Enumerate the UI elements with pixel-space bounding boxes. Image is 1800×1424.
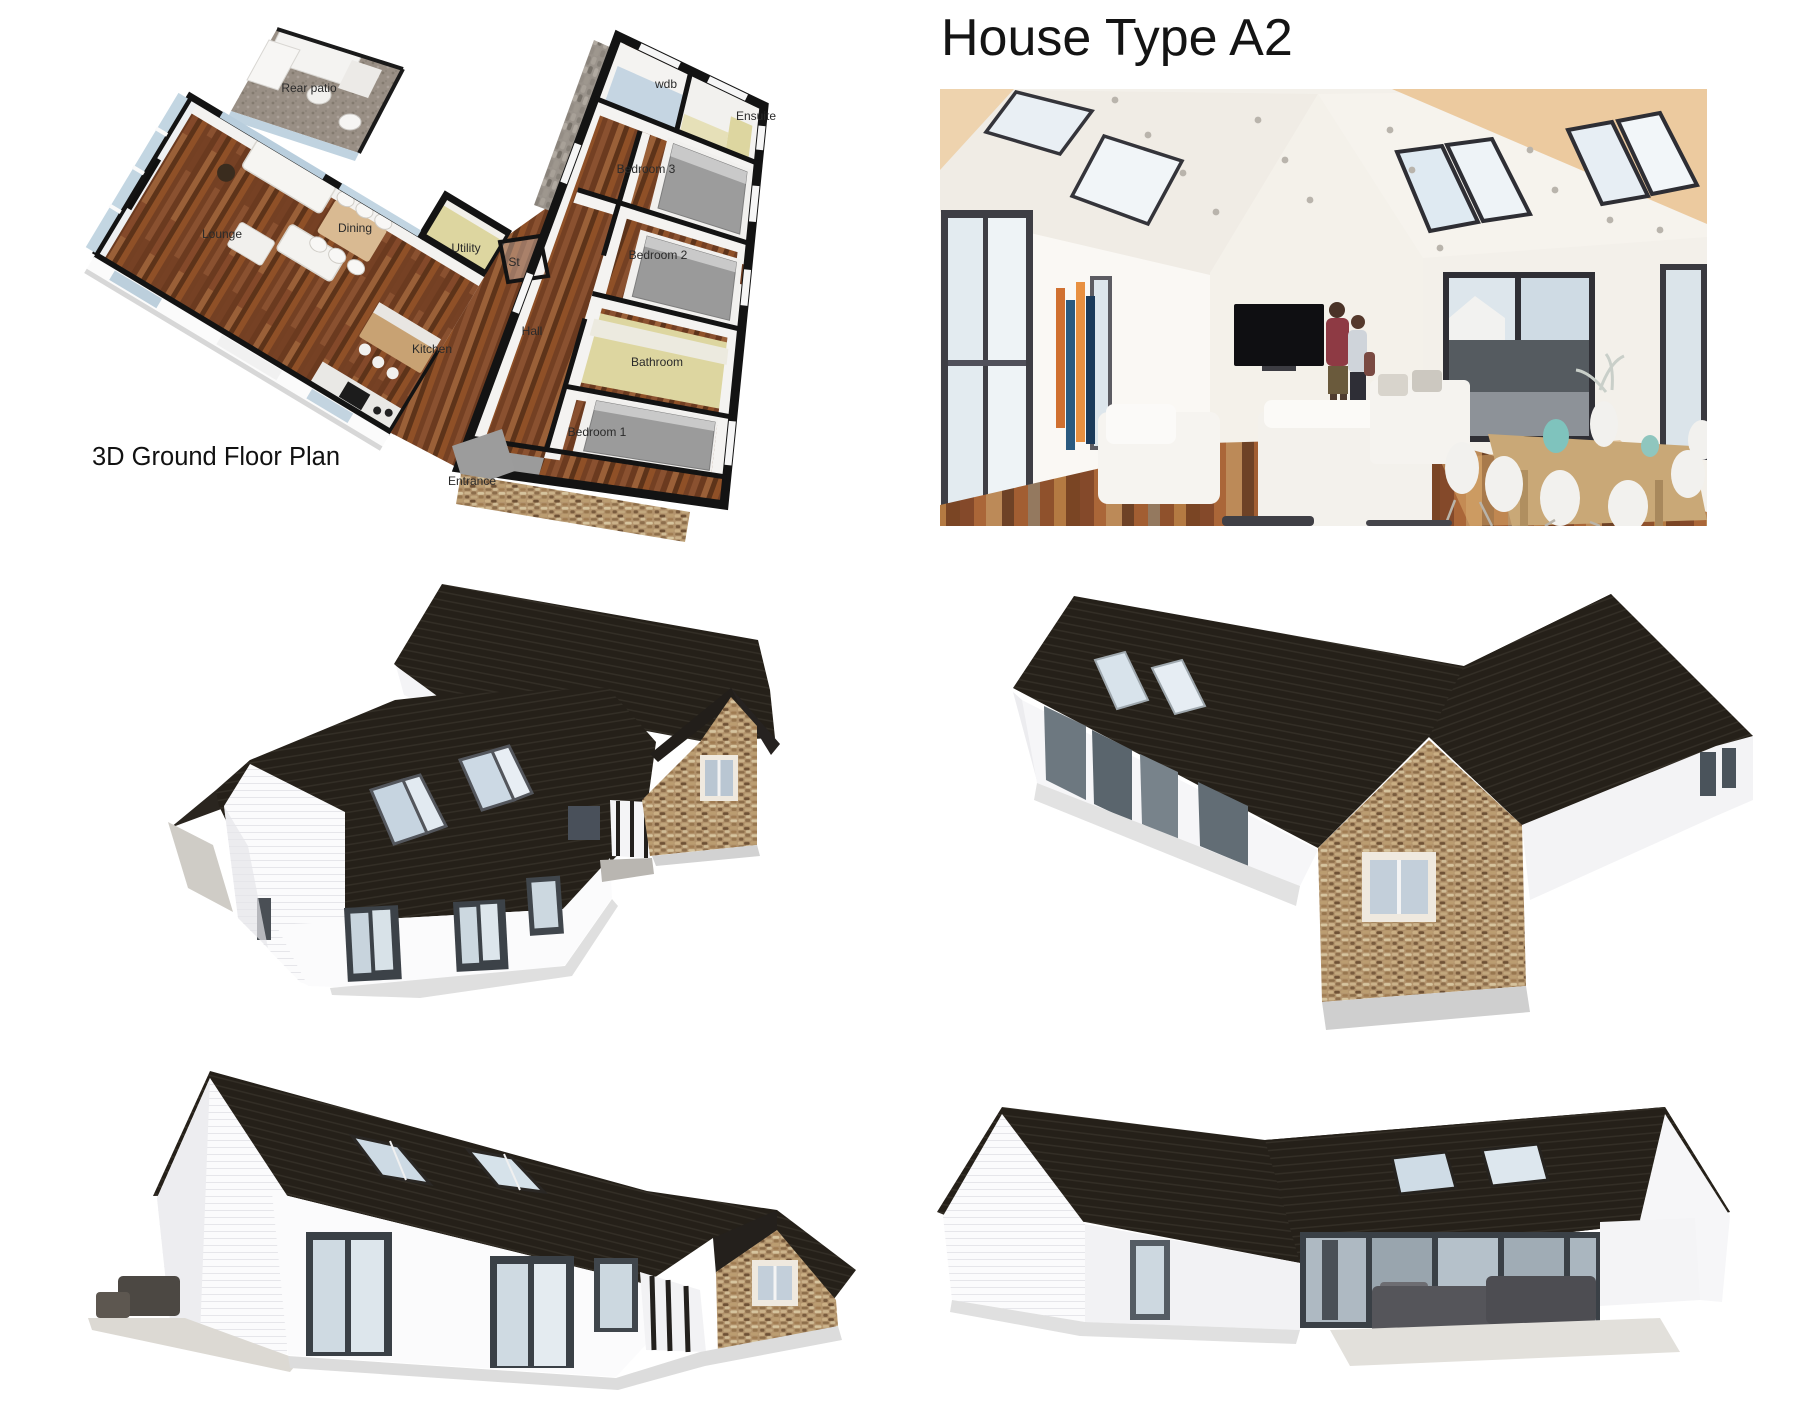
svg-text:wdb: wdb bbox=[654, 77, 677, 91]
svg-text:Ensuite: Ensuite bbox=[736, 109, 776, 123]
svg-text:Bedroom 2: Bedroom 2 bbox=[629, 248, 688, 262]
svg-text:Dining: Dining bbox=[338, 221, 372, 235]
svg-text:Hall: Hall bbox=[522, 324, 543, 338]
svg-text:House Type A2: House Type A2 bbox=[941, 9, 1293, 67]
svg-text:Bathroom: Bathroom bbox=[631, 355, 683, 369]
svg-text:St: St bbox=[508, 255, 520, 269]
svg-text:Lounge: Lounge bbox=[202, 227, 242, 241]
svg-text:Utility: Utility bbox=[451, 241, 480, 255]
svg-text:Kitchen: Kitchen bbox=[412, 342, 452, 356]
svg-text:Bedroom 1: Bedroom 1 bbox=[568, 425, 627, 439]
svg-text:Bedroom 3: Bedroom 3 bbox=[617, 162, 676, 176]
svg-text:Rear patio: Rear patio bbox=[281, 81, 337, 95]
svg-text:3D Ground Floor Plan: 3D Ground Floor Plan bbox=[92, 443, 340, 471]
svg-text:Entrance: Entrance bbox=[448, 474, 496, 488]
